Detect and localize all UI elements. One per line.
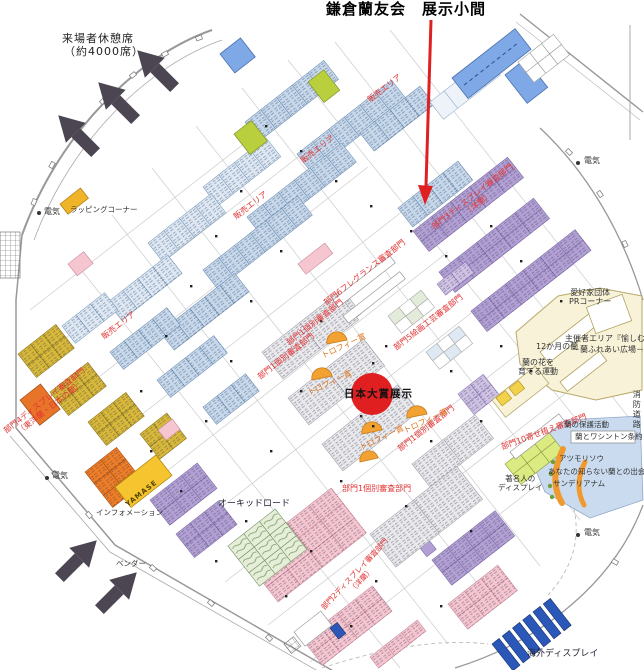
aisle-post <box>270 450 272 452</box>
booth-text-noise <box>88 392 144 445</box>
fan-pr-label: 愛好家団体 PRコーナー <box>569 288 611 306</box>
aisle-post <box>375 580 377 582</box>
grow-orchid-label: 蘭の花を 育てる運動 <box>518 358 558 376</box>
aisle-post <box>250 300 252 302</box>
aisle-post <box>285 595 287 597</box>
aisle-post <box>500 345 502 347</box>
booth-text-noise <box>157 336 227 398</box>
wrapping-corner-label: ラッピングコーナー <box>70 206 138 215</box>
aisle-post <box>140 390 142 392</box>
aisle-post <box>450 370 452 372</box>
booth-text-noise <box>148 194 226 262</box>
encounter-label: あなたの知らない蘭との出会い <box>548 468 644 477</box>
venue-map-graphics <box>0 0 644 670</box>
aisle-post <box>410 230 412 232</box>
aisle-post <box>372 362 374 364</box>
information-label: インフォメーション <box>96 509 163 518</box>
aisle-post <box>340 480 342 482</box>
fire-road-label: 消防道路 <box>632 390 641 430</box>
electric-dot <box>45 476 49 480</box>
electric-label: 電気 <box>584 528 600 537</box>
overseas-display-label: 海外ディスプレイ <box>527 649 598 659</box>
aisle-post <box>265 125 267 127</box>
aisle-post <box>180 490 182 492</box>
aisle-post <box>245 520 247 522</box>
aisle-post <box>150 450 152 452</box>
sanderianum-label: サンデリアナム <box>553 480 605 489</box>
orchid-road-label: オーキッドロード <box>218 499 290 509</box>
aisle-post <box>230 360 232 362</box>
electric-dot <box>576 533 580 537</box>
aisle-post <box>310 550 312 552</box>
aisle-post <box>280 250 282 252</box>
aisle-post <box>215 235 217 237</box>
visitor-rest-label: 来場者休憩席 <box>62 33 134 46</box>
visitor-rest-seats: （約4000席） <box>64 46 144 59</box>
electric-dot <box>37 211 41 215</box>
aisle-post <box>215 560 217 562</box>
aisle-post <box>560 300 562 302</box>
aisle-post <box>372 425 374 427</box>
aisle-post <box>300 150 302 152</box>
organizer-area-label2: －蘭ふれあい広場－ <box>572 345 644 354</box>
aisle-post <box>480 420 482 422</box>
aisle-post <box>205 420 207 422</box>
grand-prize-label: 日本大賞展示 <box>344 388 413 400</box>
electric-label: 電気 <box>44 207 60 216</box>
booth-text-noise <box>160 274 249 351</box>
aisle-post <box>350 625 352 627</box>
aisle-post <box>520 260 522 262</box>
atsumorisou-label: アツモリソウ <box>559 455 604 464</box>
celebrity-display-label: 著名人の ディスプレイ <box>498 475 542 492</box>
aisle-post <box>440 605 442 607</box>
booth-text-noise <box>18 324 74 377</box>
aisle-post <box>165 335 167 337</box>
aisle-post <box>190 285 192 287</box>
protection-label: 蘭の保護活動 <box>564 421 609 430</box>
aisle-post <box>405 505 407 507</box>
dept1-label: 部門1個別審査部門 <box>342 484 411 493</box>
annotation-title: 鎌倉蘭友会 展示小間 <box>326 1 486 18</box>
twelve-months-label: 12か月の蘭 <box>536 342 578 351</box>
booth-text-noise <box>108 255 182 320</box>
aisle-post <box>300 390 302 392</box>
venue-map: 鎌倉蘭友会 展示小間 来場者休憩席 （約4000席） 販売エリア 販売エリア 販… <box>0 0 644 670</box>
electric-dot <box>576 161 580 165</box>
aisle-post <box>385 345 387 347</box>
aisle-post <box>335 180 337 182</box>
aisle-post <box>430 440 432 442</box>
aisle-post <box>370 205 372 207</box>
aisle-post <box>490 225 492 227</box>
aisle-post <box>470 530 472 532</box>
electric-label: 電気 <box>584 156 600 165</box>
vendor-label: ベンダー <box>116 560 146 569</box>
aisle-post <box>360 415 362 417</box>
booth-text-noise <box>203 374 259 425</box>
electric-label: 電気 <box>52 471 68 480</box>
booth-text-noise <box>370 620 426 668</box>
washington-label: 蘭とワシントン条約 <box>575 433 643 442</box>
aisle-post <box>240 190 242 192</box>
aisle-post <box>445 255 447 257</box>
